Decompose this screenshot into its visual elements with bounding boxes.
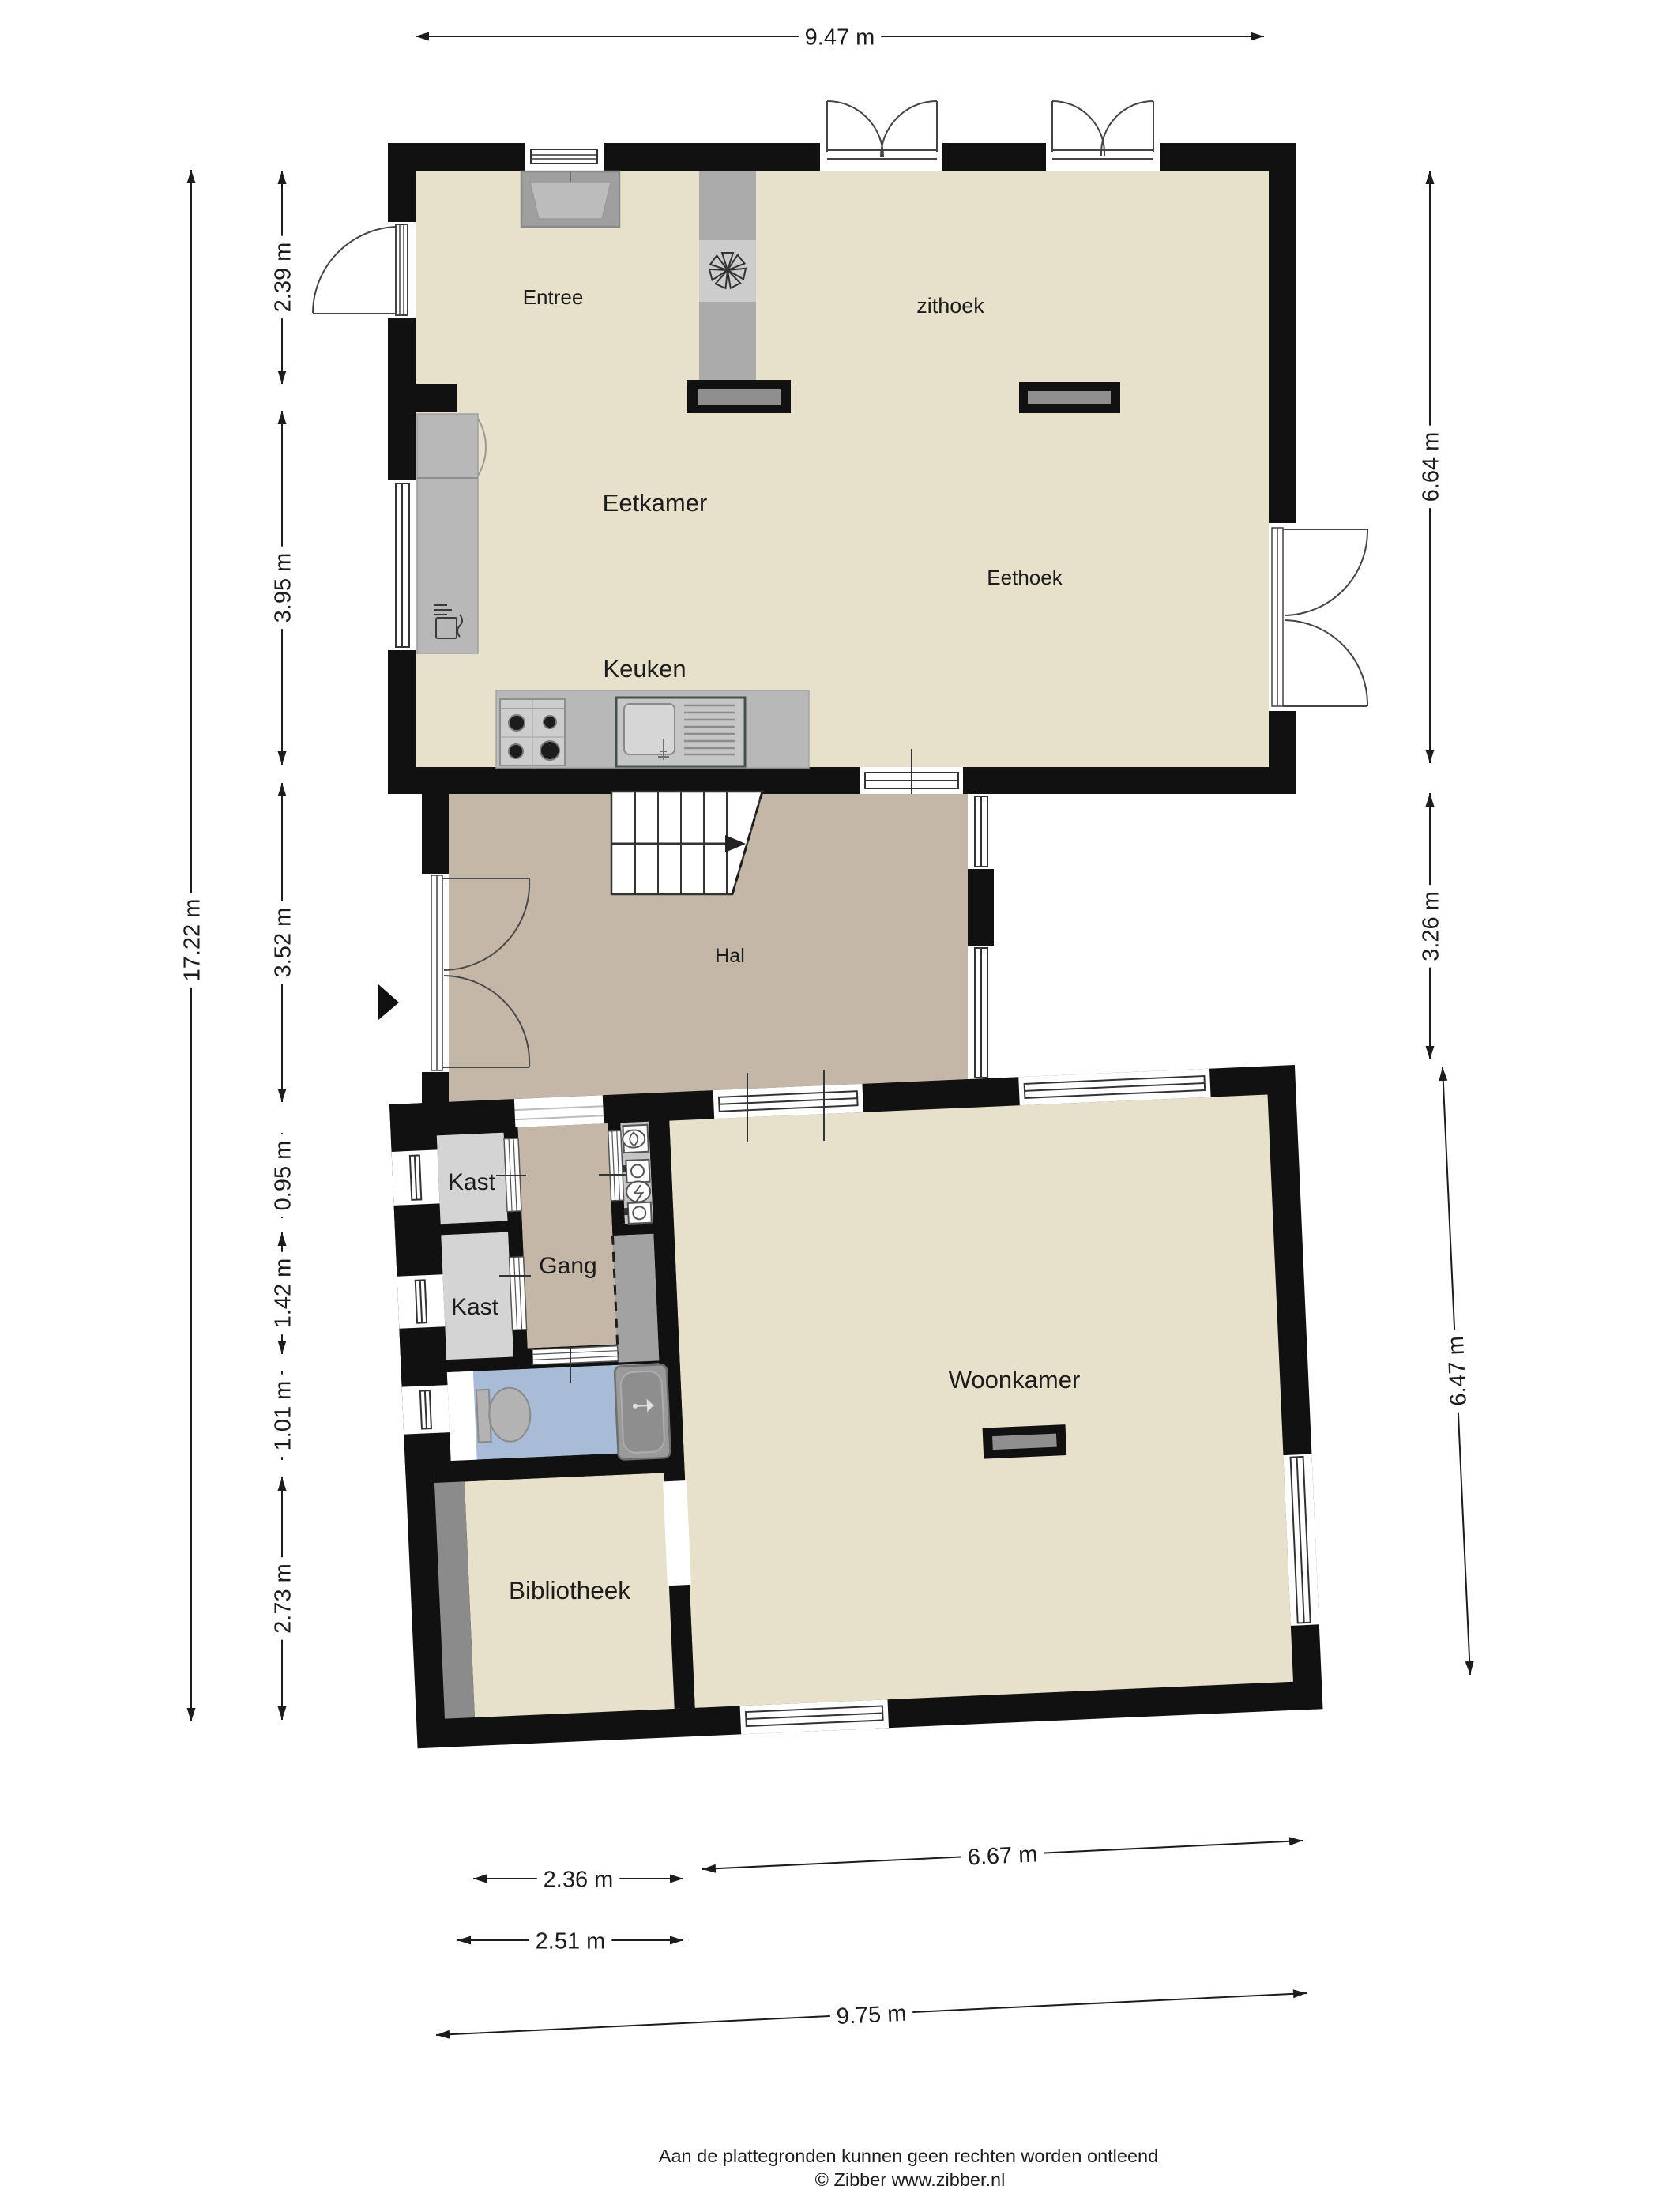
svg-text:Keuken: Keuken bbox=[603, 655, 686, 683]
svg-text:Kast: Kast bbox=[451, 1294, 499, 1320]
svg-text:Bibliotheek: Bibliotheek bbox=[509, 1576, 630, 1604]
svg-text:6.67 m: 6.67 m bbox=[967, 1841, 1038, 1870]
svg-text:zithoek: zithoek bbox=[916, 294, 984, 318]
svg-text:Eetkamer: Eetkamer bbox=[603, 489, 708, 517]
svg-text:2.73 m: 2.73 m bbox=[270, 1563, 295, 1634]
svg-text:2.51 m: 2.51 m bbox=[536, 1928, 606, 1954]
svg-text:17.22 m: 17.22 m bbox=[179, 899, 205, 982]
svg-text:Hal: Hal bbox=[715, 945, 745, 967]
svg-text:6.47 m: 6.47 m bbox=[1443, 1335, 1472, 1406]
svg-text:Entree: Entree bbox=[523, 285, 584, 309]
svg-text:Gang: Gang bbox=[539, 1253, 596, 1279]
svg-text:3.26 m: 3.26 m bbox=[1418, 891, 1443, 961]
svg-text:2.39 m: 2.39 m bbox=[270, 243, 295, 313]
svg-text:Aan de plattegronden kunnen ge: Aan de plattegronden kunnen geen rechten… bbox=[659, 2146, 1158, 2166]
svg-text:Woonkamer: Woonkamer bbox=[949, 1366, 1081, 1394]
svg-text:Eethoek: Eethoek bbox=[987, 566, 1063, 589]
svg-text:9.47 m: 9.47 m bbox=[805, 24, 875, 50]
svg-text:9.75 m: 9.75 m bbox=[836, 2001, 907, 2030]
svg-text:3.95 m: 3.95 m bbox=[270, 553, 295, 623]
svg-text:1.01 m: 1.01 m bbox=[270, 1381, 295, 1451]
svg-text:0.95 m: 0.95 m bbox=[270, 1141, 295, 1211]
svg-text:© Zibber www.zibber.nl: © Zibber www.zibber.nl bbox=[815, 2169, 1006, 2190]
svg-text:2.36 m: 2.36 m bbox=[544, 1867, 614, 1892]
svg-text:1.42 m: 1.42 m bbox=[270, 1258, 295, 1329]
svg-text:6.64 m: 6.64 m bbox=[1418, 432, 1443, 502]
svg-text:Kast: Kast bbox=[448, 1169, 496, 1195]
svg-text:3.52 m: 3.52 m bbox=[270, 908, 295, 978]
